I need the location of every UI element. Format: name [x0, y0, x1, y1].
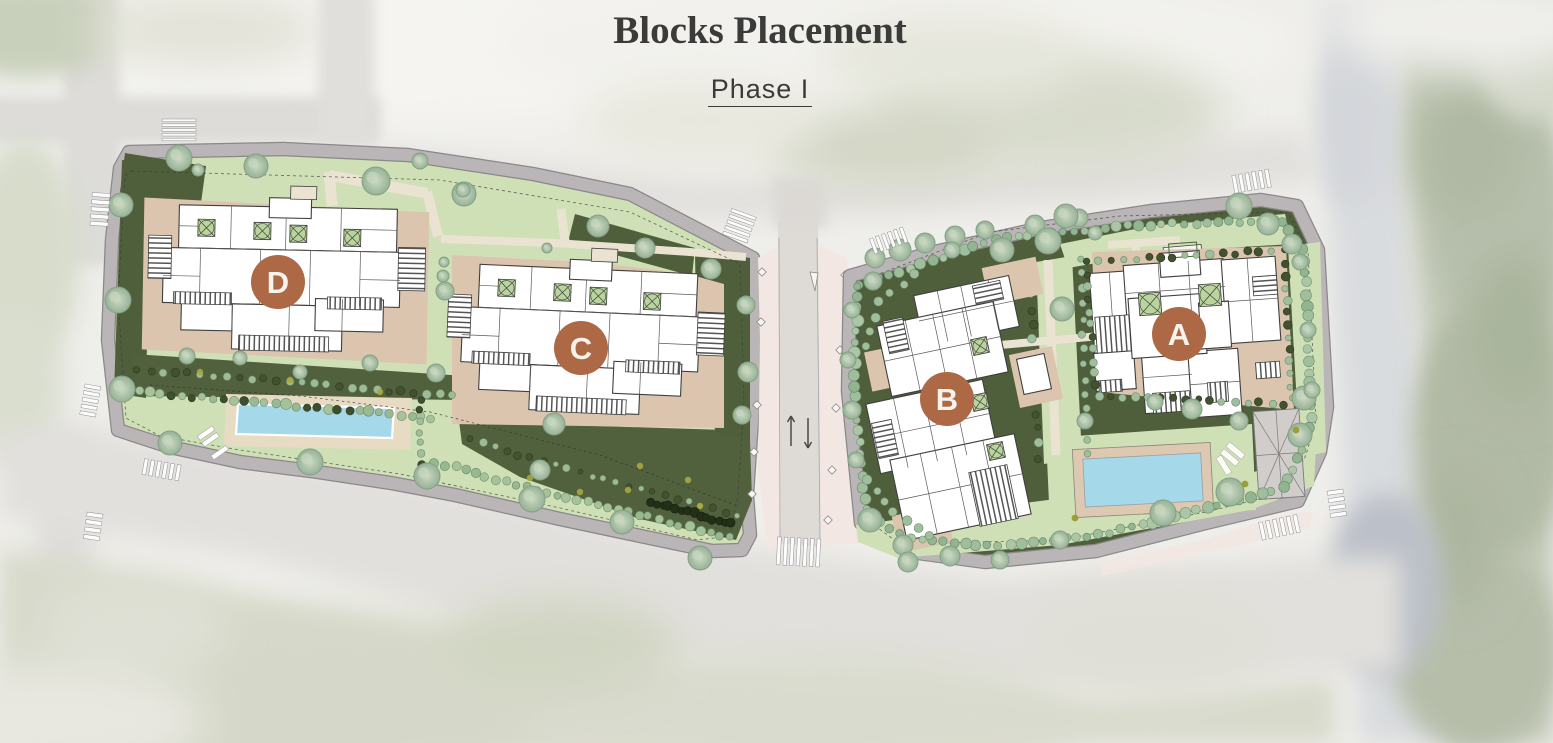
svg-text:C: C [570, 331, 592, 366]
svg-text:B: B [936, 382, 958, 417]
svg-text:A: A [1168, 317, 1190, 352]
svg-text:D: D [267, 265, 289, 300]
